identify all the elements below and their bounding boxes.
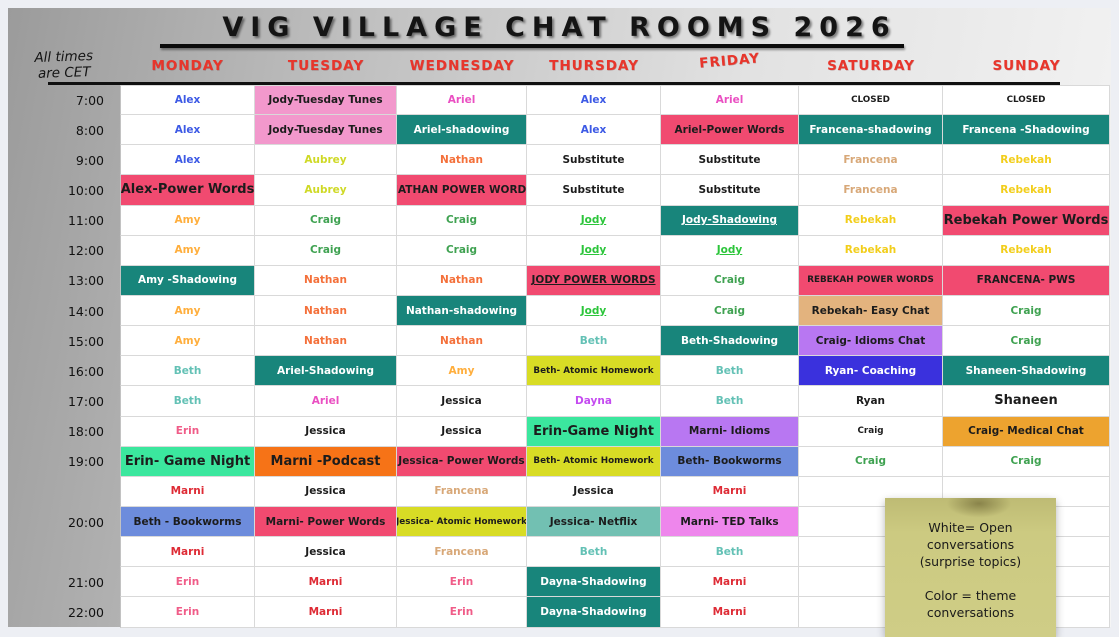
time-label: 8:00 bbox=[8, 115, 120, 145]
schedule-cell: Ariel-shadowing bbox=[397, 115, 527, 145]
schedule-cell: Alex bbox=[527, 115, 661, 145]
time-label bbox=[8, 477, 120, 507]
time-label bbox=[8, 537, 120, 567]
schedule-cell: Craig bbox=[255, 236, 397, 266]
schedule-cell: Jessica- Netflix bbox=[527, 507, 661, 537]
schedule-cell: Beth bbox=[661, 537, 799, 567]
day-header-saturday: SATURDAY bbox=[799, 58, 943, 74]
time-label: 21:00 bbox=[8, 567, 120, 597]
schedule-cell: Erin bbox=[120, 417, 255, 447]
schedule-cell: Erin bbox=[120, 567, 255, 597]
schedule-cell: Francena bbox=[397, 537, 527, 567]
schedule-cell: Francena -Shadowing bbox=[943, 115, 1110, 145]
schedule-cell: Jessica bbox=[255, 537, 397, 567]
schedule-cell: Marni bbox=[661, 567, 799, 597]
schedule-cell: Substitute bbox=[527, 175, 661, 205]
schedule-cell: Nathan bbox=[255, 296, 397, 326]
schedule-cell: Craig- Idioms Chat bbox=[799, 326, 943, 356]
schedule-cell: Erin bbox=[120, 597, 255, 627]
schedule-cell: Rebekah bbox=[799, 206, 943, 236]
schedule-cell: Marni bbox=[661, 477, 799, 507]
schedule-cell: Nathan bbox=[397, 266, 527, 296]
day-header-friday: FRIDAY bbox=[660, 47, 799, 75]
schedule-cell: Amy bbox=[120, 326, 255, 356]
schedule-cell: Marni bbox=[120, 477, 255, 507]
schedule-cell: Amy bbox=[120, 296, 255, 326]
time-label: 17:00 bbox=[8, 386, 120, 416]
schedule-cell: Alex bbox=[120, 115, 255, 145]
schedule-cell: Jody bbox=[527, 296, 661, 326]
schedule-cell: Marni bbox=[661, 597, 799, 627]
schedule-cell: Craig- Medical Chat bbox=[943, 417, 1110, 447]
schedule-cell: Marni- Idioms bbox=[661, 417, 799, 447]
schedule-cell: Nathan bbox=[255, 326, 397, 356]
schedule-cell: Marni bbox=[120, 537, 255, 567]
schedule-cell: Jessica bbox=[255, 417, 397, 447]
schedule-cell: Alex bbox=[120, 145, 255, 175]
schedule-cell: Beth- Atomic Homework bbox=[527, 447, 661, 477]
schedule-cell: Nathan bbox=[397, 326, 527, 356]
schedule-cell: Rebekah Power Words bbox=[943, 206, 1110, 236]
schedule-cell: Rebekah- Easy Chat bbox=[799, 296, 943, 326]
schedule-cell: Alex bbox=[120, 85, 255, 115]
schedule-cell: Beth bbox=[661, 386, 799, 416]
schedule-cell: FRANCENA- PWS bbox=[943, 266, 1110, 296]
time-label: 15:00 bbox=[8, 326, 120, 356]
time-label: 22:00 bbox=[8, 597, 120, 627]
schedule-cell: Ryan- Coaching bbox=[799, 356, 943, 386]
schedule-cell: Aubrey bbox=[255, 175, 397, 205]
legend-line: Color = theme bbox=[885, 588, 1056, 605]
schedule-cell: REBEKAH POWER WORDS bbox=[799, 266, 943, 296]
schedule-cell: Marni- TED Talks bbox=[661, 507, 799, 537]
schedule-cell: Amy bbox=[120, 236, 255, 266]
schedule-cell: Craig bbox=[397, 236, 527, 266]
day-header-wednesday: WEDNESDAY bbox=[397, 58, 527, 74]
schedule-cell: NATHAN POWER WORDS bbox=[397, 175, 527, 205]
legend-line: conversations bbox=[885, 537, 1056, 554]
legend-sticky-note: White= Open conversations (surprise topi… bbox=[885, 498, 1056, 637]
schedule-cell: Ariel bbox=[661, 85, 799, 115]
schedule-cell: Francena bbox=[397, 477, 527, 507]
day-header-monday: MONDAY bbox=[120, 58, 255, 74]
schedule-cell: CLOSED bbox=[943, 85, 1110, 115]
schedule-cell: Nathan-shadowing bbox=[397, 296, 527, 326]
time-label: 10:00 bbox=[8, 175, 120, 205]
schedule-cell: Jessica bbox=[255, 477, 397, 507]
schedule-cell: Rebekah bbox=[943, 236, 1110, 266]
schedule-cell: Francena-shadowing bbox=[799, 115, 943, 145]
time-label: 7:00 bbox=[8, 85, 120, 115]
day-header-sunday: SUNDAY bbox=[943, 58, 1110, 74]
schedule-cell: Jody-Shadowing bbox=[661, 206, 799, 236]
schedule-cell: Beth-Shadowing bbox=[661, 326, 799, 356]
schedule-cell: Jessica- Atomic Homework bbox=[397, 507, 527, 537]
day-header-tuesday: TUESDAY bbox=[255, 58, 397, 74]
schedule-cell: Jessica bbox=[397, 386, 527, 416]
schedule-cell: Craig bbox=[397, 206, 527, 236]
schedule-cell: Ryan bbox=[799, 386, 943, 416]
day-header-row: All times are CET MONDAY TUESDAY WEDNESD… bbox=[8, 50, 1110, 82]
schedule-cell: Jody-Tuesday Tunes bbox=[255, 115, 397, 145]
time-label: 13:00 bbox=[8, 266, 120, 296]
schedule-cell: Craig bbox=[799, 447, 943, 477]
time-label: 12:00 bbox=[8, 236, 120, 266]
timezone-note: All times are CET bbox=[21, 49, 106, 83]
schedule-cell: Substitute bbox=[661, 175, 799, 205]
schedule-cell: Nathan bbox=[255, 266, 397, 296]
schedule-cell: Alex-Power Words bbox=[120, 175, 255, 205]
schedule-cell: Francena bbox=[799, 145, 943, 175]
legend-line: conversations bbox=[885, 605, 1056, 622]
time-label: 18:00 bbox=[8, 417, 120, 447]
schedule-cell: Beth bbox=[527, 537, 661, 567]
schedule-cell: Francena bbox=[799, 175, 943, 205]
schedule-cell: Jody-Tuesday Tunes bbox=[255, 85, 397, 115]
schedule-cell: Beth bbox=[527, 326, 661, 356]
schedule-cell: Aubrey bbox=[255, 145, 397, 175]
schedule-cell: Craig bbox=[943, 326, 1110, 356]
schedule-cell: Dayna-Shadowing bbox=[527, 567, 661, 597]
schedule-cell: Ariel-Power Words bbox=[661, 115, 799, 145]
time-label: 14:00 bbox=[8, 296, 120, 326]
schedule-cell: Erin bbox=[397, 567, 527, 597]
schedule-cell: Craig bbox=[661, 266, 799, 296]
schedule-cell: Amy bbox=[120, 206, 255, 236]
schedule-cell: Amy bbox=[397, 356, 527, 386]
schedule-cell: Jessica bbox=[527, 477, 661, 507]
schedule-cell: Shaneen bbox=[943, 386, 1110, 416]
schedule-cell: Jody bbox=[527, 206, 661, 236]
schedule-cell: Craig bbox=[255, 206, 397, 236]
schedule-cell: Jessica- Power Words bbox=[397, 447, 527, 477]
schedule-cell: Alex bbox=[527, 85, 661, 115]
schedule-cell: Ariel bbox=[255, 386, 397, 416]
schedule-cell: Rebekah bbox=[943, 175, 1110, 205]
schedule-cell: Craig bbox=[799, 417, 943, 447]
schedule-cell: Beth bbox=[661, 356, 799, 386]
schedule-cell: Beth bbox=[120, 386, 255, 416]
time-label: 16:00 bbox=[8, 356, 120, 386]
schedule-cell: CLOSED bbox=[799, 85, 943, 115]
time-label: 11:00 bbox=[8, 206, 120, 236]
schedule-cell: Beth- Bookworms bbox=[661, 447, 799, 477]
time-label: 9:00 bbox=[8, 145, 120, 175]
schedule-cell: JODY POWER WORDS bbox=[527, 266, 661, 296]
schedule-cell: Beth- Atomic Homework bbox=[527, 356, 661, 386]
schedule-cell: Erin-Game Night bbox=[527, 417, 661, 447]
schedule-cell: Beth - Bookworms bbox=[120, 507, 255, 537]
schedule-cell: Substitute bbox=[527, 145, 661, 175]
schedule-cell: Jody bbox=[661, 236, 799, 266]
schedule-cell: Marni -Podcast bbox=[255, 447, 397, 477]
schedule-cell: Rebekah bbox=[943, 145, 1110, 175]
page-title: VIG VILLAGE CHAT ROOMS 2026 bbox=[68, 12, 1051, 43]
schedule-cell: Craig bbox=[943, 447, 1110, 477]
schedule-cell: Ariel-Shadowing bbox=[255, 356, 397, 386]
schedule-cell: Craig bbox=[943, 296, 1110, 326]
schedule-cell: Marni bbox=[255, 567, 397, 597]
day-header-thursday: THURSDAY bbox=[527, 58, 661, 74]
schedule-cell: Marni- Power Words bbox=[255, 507, 397, 537]
schedule-cell: Erin- Game Night bbox=[120, 447, 255, 477]
schedule-cell: Amy -Shadowing bbox=[120, 266, 255, 296]
schedule-cell: Rebekah bbox=[799, 236, 943, 266]
schedule-cell: Substitute bbox=[661, 145, 799, 175]
legend-line: (surprise topics) bbox=[885, 554, 1056, 571]
legend-line: White= Open bbox=[885, 520, 1056, 537]
schedule-poster: VIG VILLAGE CHAT ROOMS 2026 All times ar… bbox=[0, 0, 1119, 637]
schedule-cell: Beth bbox=[120, 356, 255, 386]
schedule-cell: Marni bbox=[255, 597, 397, 627]
schedule-cell: Jessica bbox=[397, 417, 527, 447]
schedule-cell: Erin bbox=[397, 597, 527, 627]
schedule-cell: Shaneen-Shadowing bbox=[943, 356, 1110, 386]
schedule-cell: Jody bbox=[527, 236, 661, 266]
time-label: 20:00 bbox=[8, 507, 120, 537]
schedule-cell: Dayna-Shadowing bbox=[527, 597, 661, 627]
schedule-cell: Ariel bbox=[397, 85, 527, 115]
time-label: 19:00 bbox=[8, 447, 120, 477]
schedule-cell: Dayna bbox=[527, 386, 661, 416]
schedule-cell: Nathan bbox=[397, 145, 527, 175]
schedule-cell: Craig bbox=[661, 296, 799, 326]
legend-line bbox=[885, 571, 1056, 588]
